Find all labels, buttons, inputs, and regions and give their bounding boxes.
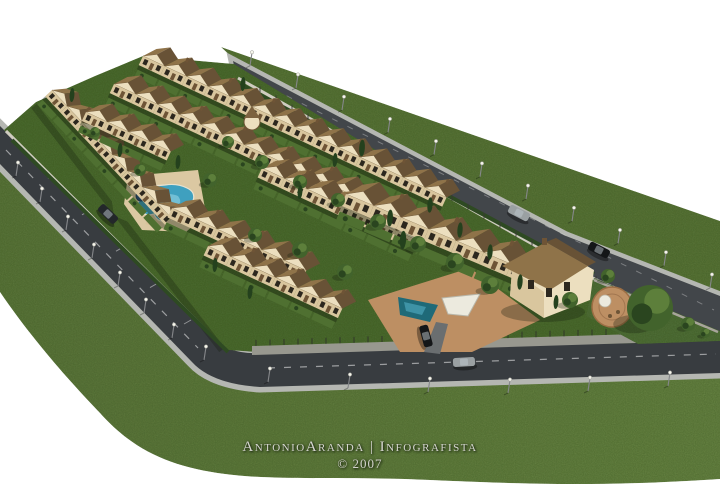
architectural-render: AntonioAranda | Infografista © 2007 (0, 0, 720, 492)
car (453, 357, 478, 371)
render-canvas (0, 0, 720, 492)
